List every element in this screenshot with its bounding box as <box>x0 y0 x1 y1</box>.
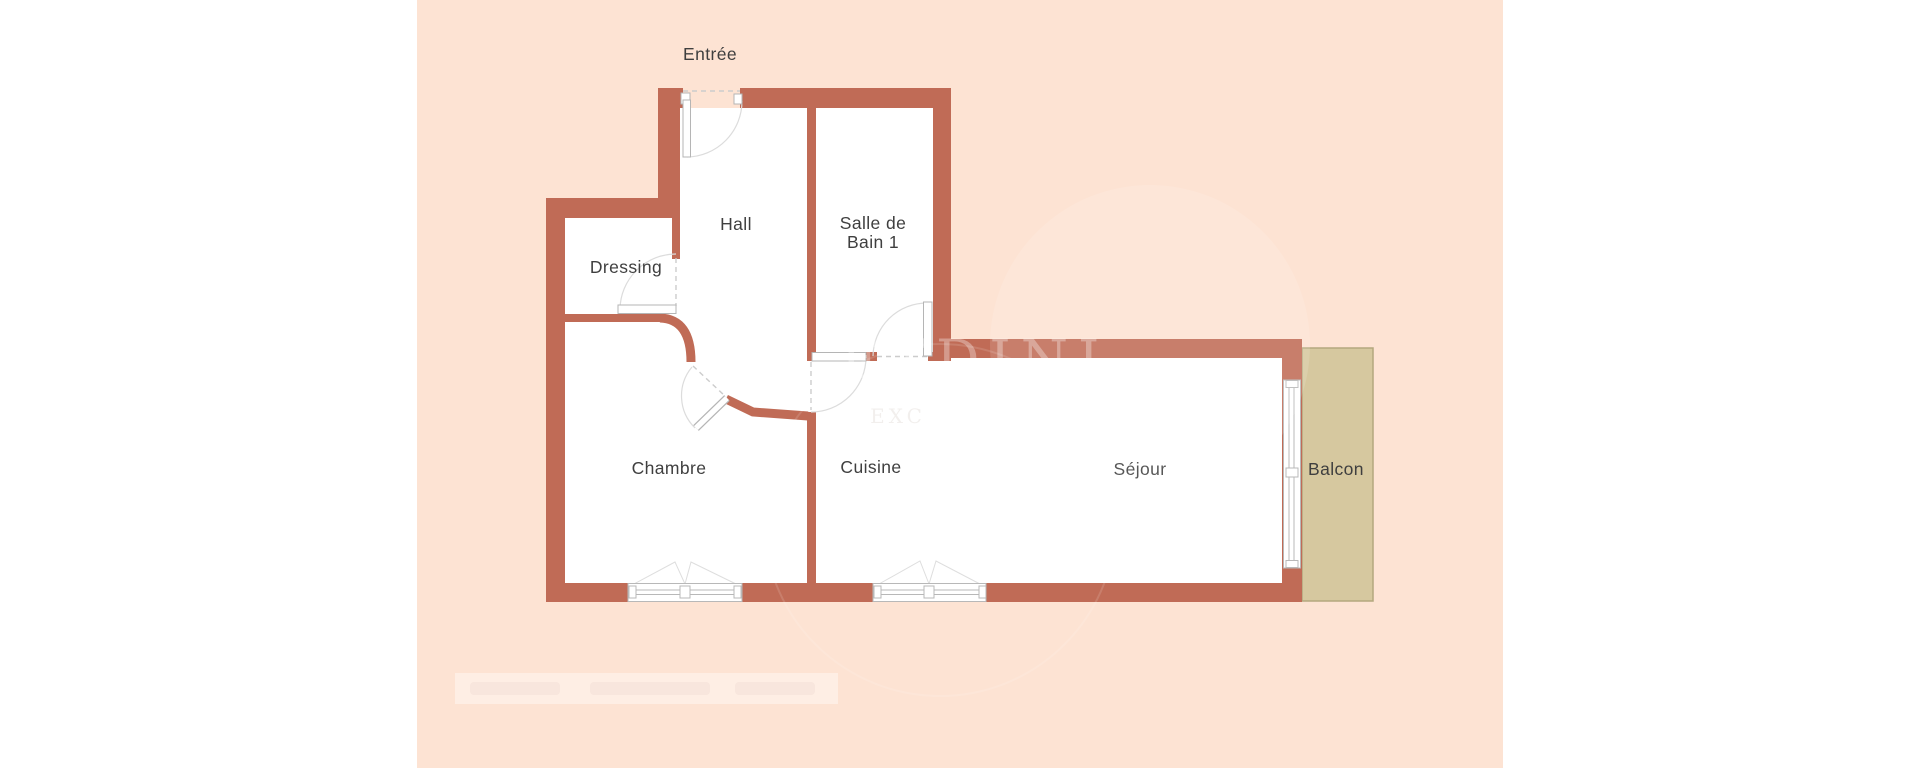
outer-wall-top-right <box>740 88 951 108</box>
window-jamb <box>734 586 741 598</box>
room-label-salle-de-bain-line2: Bain 1 <box>847 232 899 252</box>
watermark-text-large: ETDINI <box>841 328 1110 391</box>
outer-wall-notch <box>546 198 680 218</box>
room-label-balcon: Balcon <box>1308 459 1364 479</box>
window-meeting-stile <box>1286 468 1298 477</box>
window-meeting-stile <box>680 586 690 598</box>
window-jamb <box>629 586 636 598</box>
watermark-bar-smudge <box>590 682 710 695</box>
watermark-bar-smudge <box>470 682 560 695</box>
watermark-bar-smudge <box>735 682 815 695</box>
floor-plan-page: Entrée Hall Salle de Bain 1 Dressing Cha… <box>0 0 1920 768</box>
partition-hall-bathroom <box>807 108 816 352</box>
entrance-door-jamb <box>734 94 742 104</box>
room-label-dressing: Dressing <box>590 257 662 277</box>
entrance-label: Entrée <box>683 44 737 64</box>
partition-dressing-bottom <box>565 314 662 322</box>
floor-plan: Entrée Hall Salle de Bain 1 Dressing Cha… <box>0 0 1920 768</box>
watermark-text-small: EXC <box>870 404 926 428</box>
window-jamb <box>1286 561 1298 568</box>
room-label-chambre: Chambre <box>632 458 707 478</box>
dressing-door-leaf <box>618 305 676 314</box>
room-label-hall: Hall <box>720 214 752 234</box>
room-label-salle-de-bain-line1: Salle de <box>840 213 906 233</box>
outer-wall-west <box>546 198 565 602</box>
window-meeting-stile <box>924 586 934 598</box>
room-label-cuisine: Cuisine <box>840 457 901 477</box>
partition-chambre-cuisine <box>807 412 816 602</box>
window-jamb <box>874 586 881 598</box>
partition-dressing-hall <box>672 218 680 259</box>
entrance-door-leaf <box>683 100 691 157</box>
outer-wall-bathroom-right <box>933 88 951 358</box>
window-jamb <box>979 586 986 598</box>
